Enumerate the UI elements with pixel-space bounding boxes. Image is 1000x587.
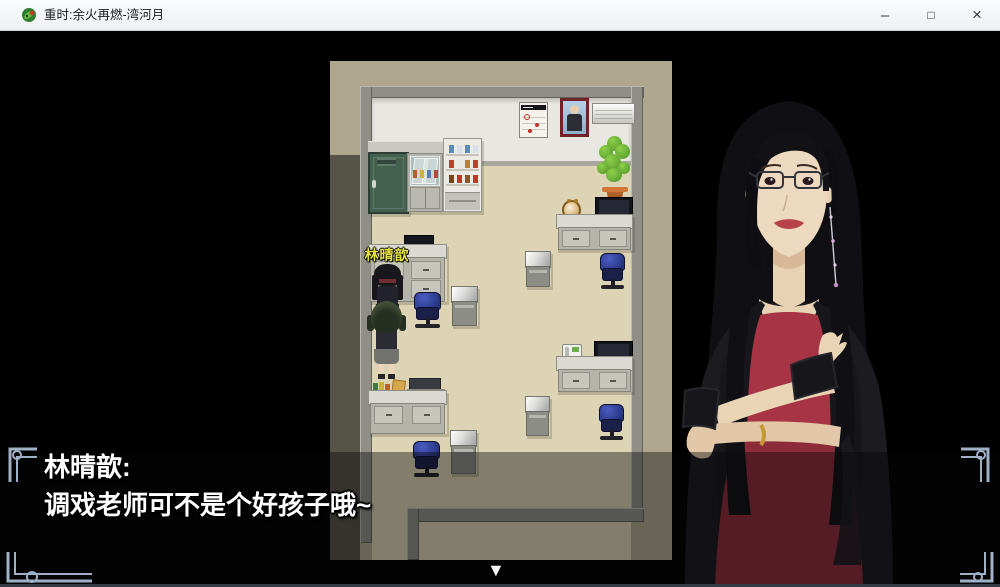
portrait-eye (803, 177, 814, 185)
plant-leaf (606, 168, 622, 182)
office-desk (556, 356, 633, 392)
player-leg (389, 363, 394, 374)
desk-drawer (599, 372, 627, 389)
copier (525, 396, 550, 436)
office-chair (412, 292, 443, 332)
desk-drawer (599, 230, 627, 247)
cabinet-pane (422, 158, 439, 184)
minimize-button[interactable]: – (862, 0, 908, 30)
player-skirt (374, 349, 399, 364)
copier (451, 286, 478, 326)
calendar-red-marks (524, 114, 530, 120)
cabinet-items (413, 170, 417, 178)
window-title: 重时:余火再燃-湾河月 (44, 0, 164, 30)
door-panel (373, 157, 404, 209)
dialog-corner-top-right (960, 444, 990, 484)
window-controls: – □ × (862, 0, 1000, 30)
player-shoe (378, 374, 385, 379)
portrait-earring (833, 263, 836, 266)
wall-frame-top (360, 86, 644, 98)
shelf-row (446, 171, 479, 186)
portrait-earring (834, 283, 838, 287)
door-handle (372, 180, 376, 188)
shelf-items (449, 145, 454, 153)
office-chair (597, 404, 626, 440)
shelf-drawers (445, 192, 480, 210)
desk-drawer (562, 372, 590, 389)
portrait-earring (831, 239, 835, 243)
cabinet-sliding-doors (410, 187, 440, 209)
window-titlebar: 重时:余火再燃-湾河月 – □ × (0, 0, 1000, 31)
maximize-button[interactable]: □ (908, 0, 954, 30)
office-chair (598, 253, 627, 291)
shelf-row (446, 141, 479, 156)
office-desk (368, 390, 447, 434)
green-door (368, 152, 409, 214)
office-desk (556, 214, 633, 250)
player-sprite (367, 301, 406, 379)
portrait-eye (765, 177, 776, 185)
copier-body (526, 266, 550, 287)
dialog-speaker-name: 林晴歆: (44, 448, 371, 486)
supply-cabinet (407, 153, 443, 212)
phone-display (572, 347, 579, 352)
picture-portrait-bust (567, 114, 582, 131)
player-leg (379, 363, 384, 374)
potted-plant (596, 136, 634, 204)
drink-shelf (443, 138, 482, 212)
calendar-header (521, 105, 546, 110)
player-hair (371, 301, 402, 333)
copier (525, 251, 551, 287)
dialog-text-block: 林晴歆: 调戏老师可不是个好孩子哦~ (44, 448, 371, 524)
close-button[interactable]: × (954, 0, 1000, 30)
game-app-icon (21, 7, 37, 23)
wall-picture-frame (560, 98, 589, 137)
picture-portrait-head (570, 105, 579, 114)
advance-arrow-icon: ▼ (487, 560, 505, 581)
air-conditioner (592, 103, 635, 124)
chair-base (415, 324, 440, 328)
dialog-corner-top-left (8, 444, 38, 484)
dialog-line: 调戏老师可不是个好孩子哦~ (44, 486, 371, 524)
portrait-cuff-left (683, 388, 719, 429)
npc-name-label: 林晴歆 (356, 245, 418, 265)
npc-glasses (379, 279, 396, 283)
copier-body (452, 301, 477, 326)
plant-pot-rim (602, 187, 628, 192)
desk-drawer (374, 406, 403, 424)
copier-body (526, 411, 549, 436)
chair-base (600, 436, 623, 440)
shelf-items (449, 175, 454, 183)
game-window: 重时:余火再燃-湾河月 – □ × (0, 0, 1000, 587)
dialog-corner-bottom-left (6, 552, 94, 584)
desk-drawer (562, 230, 590, 247)
desk-drawer (412, 406, 441, 424)
player-shoe (388, 374, 395, 379)
calendar (519, 102, 548, 138)
chair-base (601, 285, 624, 289)
shelf-row (446, 156, 479, 171)
portrait-earring (829, 215, 832, 218)
dialog-corner-bottom-right (958, 552, 994, 584)
shelf-items (449, 160, 454, 168)
